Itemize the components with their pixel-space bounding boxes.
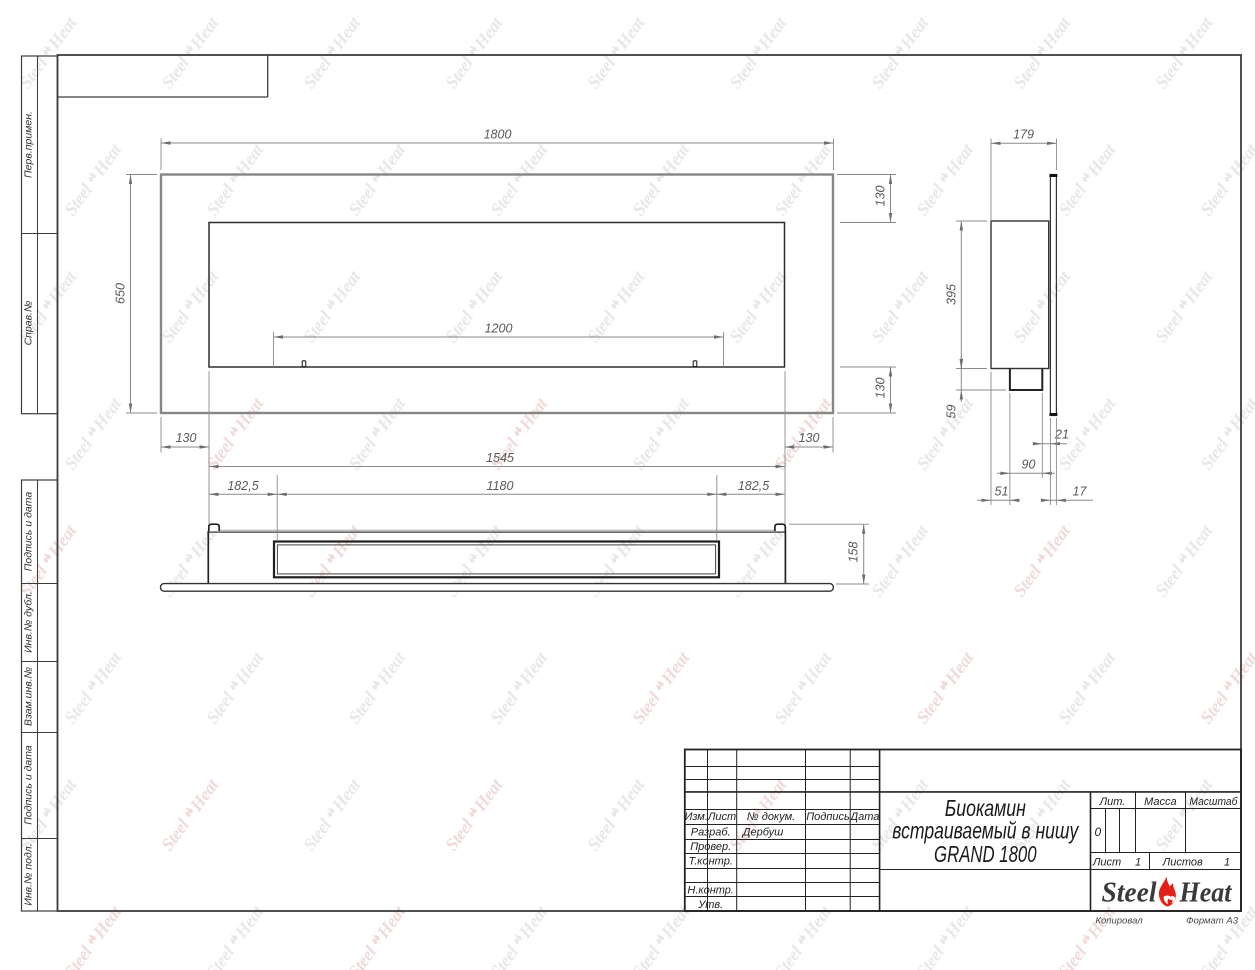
svg-text:182,5: 182,5 (227, 479, 258, 493)
svg-text:Масштаб: Масштаб (1189, 796, 1238, 808)
svg-text:130: 130 (799, 431, 820, 445)
svg-text:179: 179 (1013, 128, 1034, 142)
svg-text:90: 90 (1022, 457, 1036, 471)
svg-text:Дата: Дата (848, 811, 879, 823)
svg-text:395: 395 (945, 284, 959, 305)
svg-text:Утв.: Утв. (697, 899, 723, 911)
svg-text:182,5: 182,5 (738, 479, 769, 493)
svg-text:Heat: Heat (1179, 877, 1233, 909)
svg-text:Формат А3: Формат А3 (1186, 916, 1239, 927)
svg-text:Разраб.: Разраб. (691, 827, 731, 839)
svg-text:158: 158 (847, 542, 861, 563)
svg-text:Подпись: Подпись (806, 811, 850, 823)
svg-text:1180: 1180 (487, 479, 514, 493)
svg-text:Дербуш: Дербуш (741, 827, 784, 839)
svg-text:Лит.: Лит. (1099, 796, 1126, 808)
svg-text:130: 130 (874, 378, 888, 399)
svg-text:130: 130 (874, 186, 888, 207)
svg-text:1: 1 (1135, 857, 1141, 869)
svg-text:1545: 1545 (486, 451, 514, 465)
svg-text:Листов: Листов (1162, 857, 1203, 869)
svg-text:Провер.: Провер. (690, 841, 731, 853)
svg-text:Инв.№ дубл.: Инв.№ дубл. (23, 591, 35, 653)
svg-text:Инв.№ подл.: Инв.№ подл. (23, 843, 35, 905)
svg-text:Подпись и дата: Подпись и дата (23, 492, 35, 572)
svg-text:Справ.№: Справ.№ (23, 301, 35, 346)
svg-text:Лист: Лист (707, 811, 736, 823)
svg-text:Лист: Лист (1092, 857, 1121, 869)
svg-text:Взам.инв.№: Взам.инв.№ (23, 667, 35, 726)
svg-text:130: 130 (176, 431, 197, 445)
svg-text:Т.контр.: Т.контр. (689, 855, 733, 867)
svg-text:0: 0 (1094, 825, 1101, 839)
svg-text:Steel: Steel (1102, 877, 1158, 909)
svg-text:Н.контр.: Н.контр. (687, 885, 734, 897)
svg-text:650: 650 (114, 283, 128, 304)
svg-text:1200: 1200 (485, 322, 513, 336)
svg-text:Копировал: Копировал (1095, 916, 1143, 927)
svg-text:Масса: Масса (1144, 796, 1177, 808)
svg-text:№ докум.: № докум. (747, 811, 795, 823)
svg-text:59: 59 (945, 405, 959, 419)
svg-text:1800: 1800 (484, 128, 512, 142)
svg-text:Перв.примен.: Перв.примен. (23, 111, 35, 178)
svg-text:Изм.: Изм. (684, 811, 707, 823)
svg-text:17: 17 (1073, 484, 1088, 498)
svg-text:GRAND 1800: GRAND 1800 (934, 841, 1037, 867)
svg-text:встраиваемый в нишу: встраиваемый в нишу (892, 818, 1079, 844)
svg-text:51: 51 (995, 484, 1009, 498)
svg-text:Подпись и дата: Подпись и дата (23, 745, 35, 825)
svg-text:1: 1 (1224, 857, 1230, 869)
